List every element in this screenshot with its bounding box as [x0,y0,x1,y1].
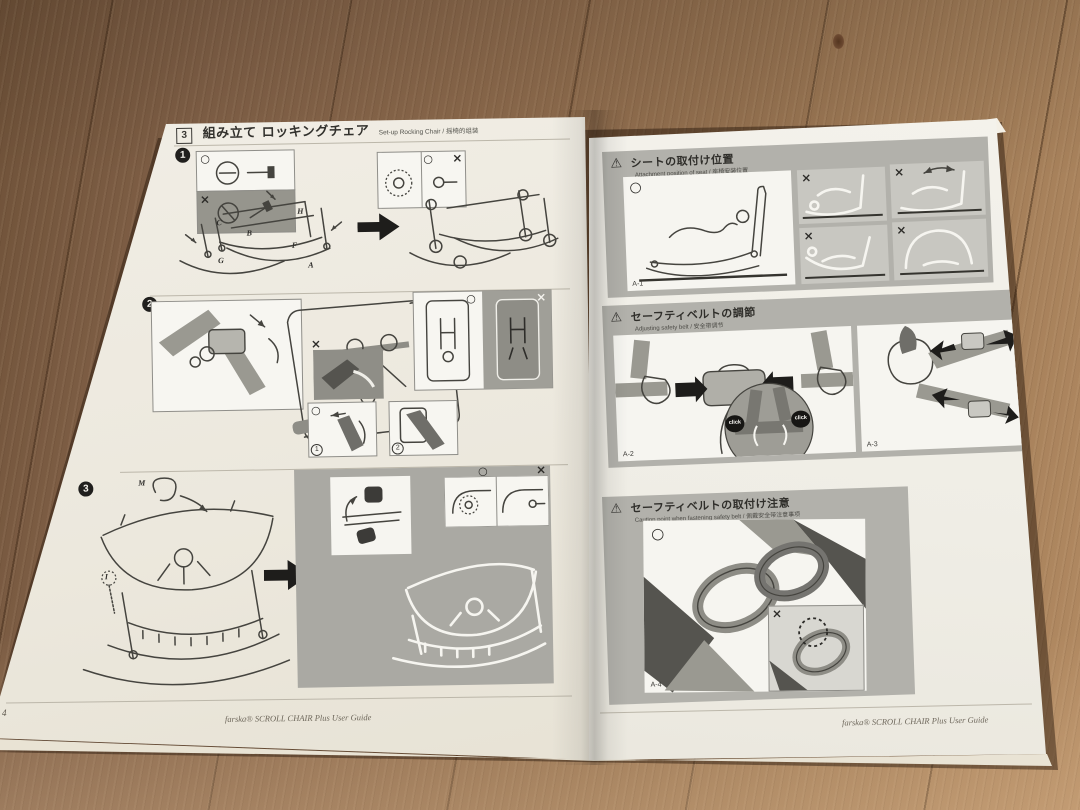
fig-a4: × ○ A-4 [643,519,866,693]
step3-assembly-diagram: M I [60,470,314,702]
click-badge-right: click [792,412,809,426]
buckle-adjust-sketch [613,326,856,461]
step3-screw-inset: ○ × [444,475,549,527]
strap-adjust-sketch [857,319,1022,451]
fig-a1: ○ A-1 [623,170,795,291]
section-number-box: 3 [176,128,192,144]
fig-a3: A-3 [857,319,1022,451]
ng-mark: × [536,463,546,477]
part-label-A: A [308,261,314,270]
step1-exploded-frame: C B F G A H [171,182,373,293]
part-label-M: M [138,479,145,488]
seat-mount-compare-sketch [412,289,554,391]
assembled-frame-sketch [399,180,569,285]
fig-a1-ng4: × [892,219,988,281]
section-belt-caution: ⚠ セーフティベルトの取付け注意 Caution point when fast… [602,486,915,705]
ok-mark: ○ [466,292,476,305]
exploded-frame-sketch [171,182,373,293]
section2-header: ⚠ セーフティベルトの調節 Adjusting safety belt / 安全… [610,303,756,334]
wrong-belt-sketch [313,349,384,400]
ng-mark: × [896,223,907,237]
fig-a4-ng-inset: × [768,605,865,692]
step1-assembled-frame [399,180,569,285]
fig-a4-label: A-4 [651,682,662,689]
ok-mark: ○ [478,465,488,478]
click-badge-left: click [727,416,744,430]
step1-number: 1 [175,148,190,163]
screw-ok-ng-small-sketch [444,475,549,527]
ng-mark: × [311,337,321,351]
section-seat-position: ⚠ シートの取付け位置 Attachment position of seat … [602,137,994,298]
right-footer-brand: farska® SCROLL CHAIR Plus User Guide [842,714,989,727]
step3-row: 3 M I [60,461,569,705]
step2-substep1: ○ 1 [307,401,378,458]
left-footer-brand: farska® SCROLL CHAIR Plus User Guide [225,712,371,724]
step3-clip-inset [330,476,411,555]
section-belt-adjust: ⚠ セーフティベルトの調節 Adjusting safety belt / 安全… [602,289,1028,468]
warning-triangle-icon: ⚠ [610,310,622,325]
part-label-H: H [297,207,303,216]
ok-mark: ○ [651,525,664,543]
ng-mark: × [772,606,782,620]
step2-ng-inset: × [313,349,384,400]
page-subtitle: Set-up Rocking Chair / 摇椅的组装 [379,128,479,137]
ok-mark: ○ [629,179,642,195]
step2-row: 2 [140,285,575,465]
warning-triangle-icon: ⚠ [610,156,622,171]
part-label-I: I [105,572,108,581]
ok-mark: ○ [200,152,210,165]
step1-row: 1 ○ × [170,136,575,293]
ng-mark: × [803,229,814,243]
part-label-F: F [292,241,298,250]
page-title: 組み立て ロッキングチェア [203,124,370,142]
wrong-position-sketch-2 [890,161,986,219]
ok-mark: ○ [311,404,321,417]
left-page-number: 4 [2,708,7,718]
wrong-position-sketch-4 [892,219,988,281]
fig-a1-label: A-1 [632,280,643,287]
part-label-C: C [216,218,222,227]
fig-a3-label: A-3 [867,441,878,448]
part-label-G: G [218,256,224,265]
ok-mark: ○ [423,152,433,165]
fig-a1-ng1: × [797,167,887,224]
ng-mark: × [801,171,812,185]
clip-attach-sketch [330,476,411,555]
fig-a1-ng2: × [890,161,986,219]
seat-onto-frame-sketch [60,470,314,702]
wood-knot [833,34,844,49]
ng-mark: × [536,290,546,304]
step3-result-panel: ○ × [294,465,554,687]
fig-a2: click click A-2 [613,326,856,461]
step2-compare-box: ○ × [412,289,554,391]
correct-position-sketch [623,170,795,291]
ng-mark: × [452,151,462,165]
wrong-threading-sketch [769,606,864,691]
warning-triangle-icon: ⚠ [610,501,622,516]
step2-substep2: 2 [388,399,459,456]
ng-mark: × [894,165,905,179]
right-footer-rule [600,703,1032,713]
fig-a1-ng3: × [799,225,889,284]
part-label-B: B [247,229,253,238]
fig-a2-label: A-2 [623,451,634,458]
